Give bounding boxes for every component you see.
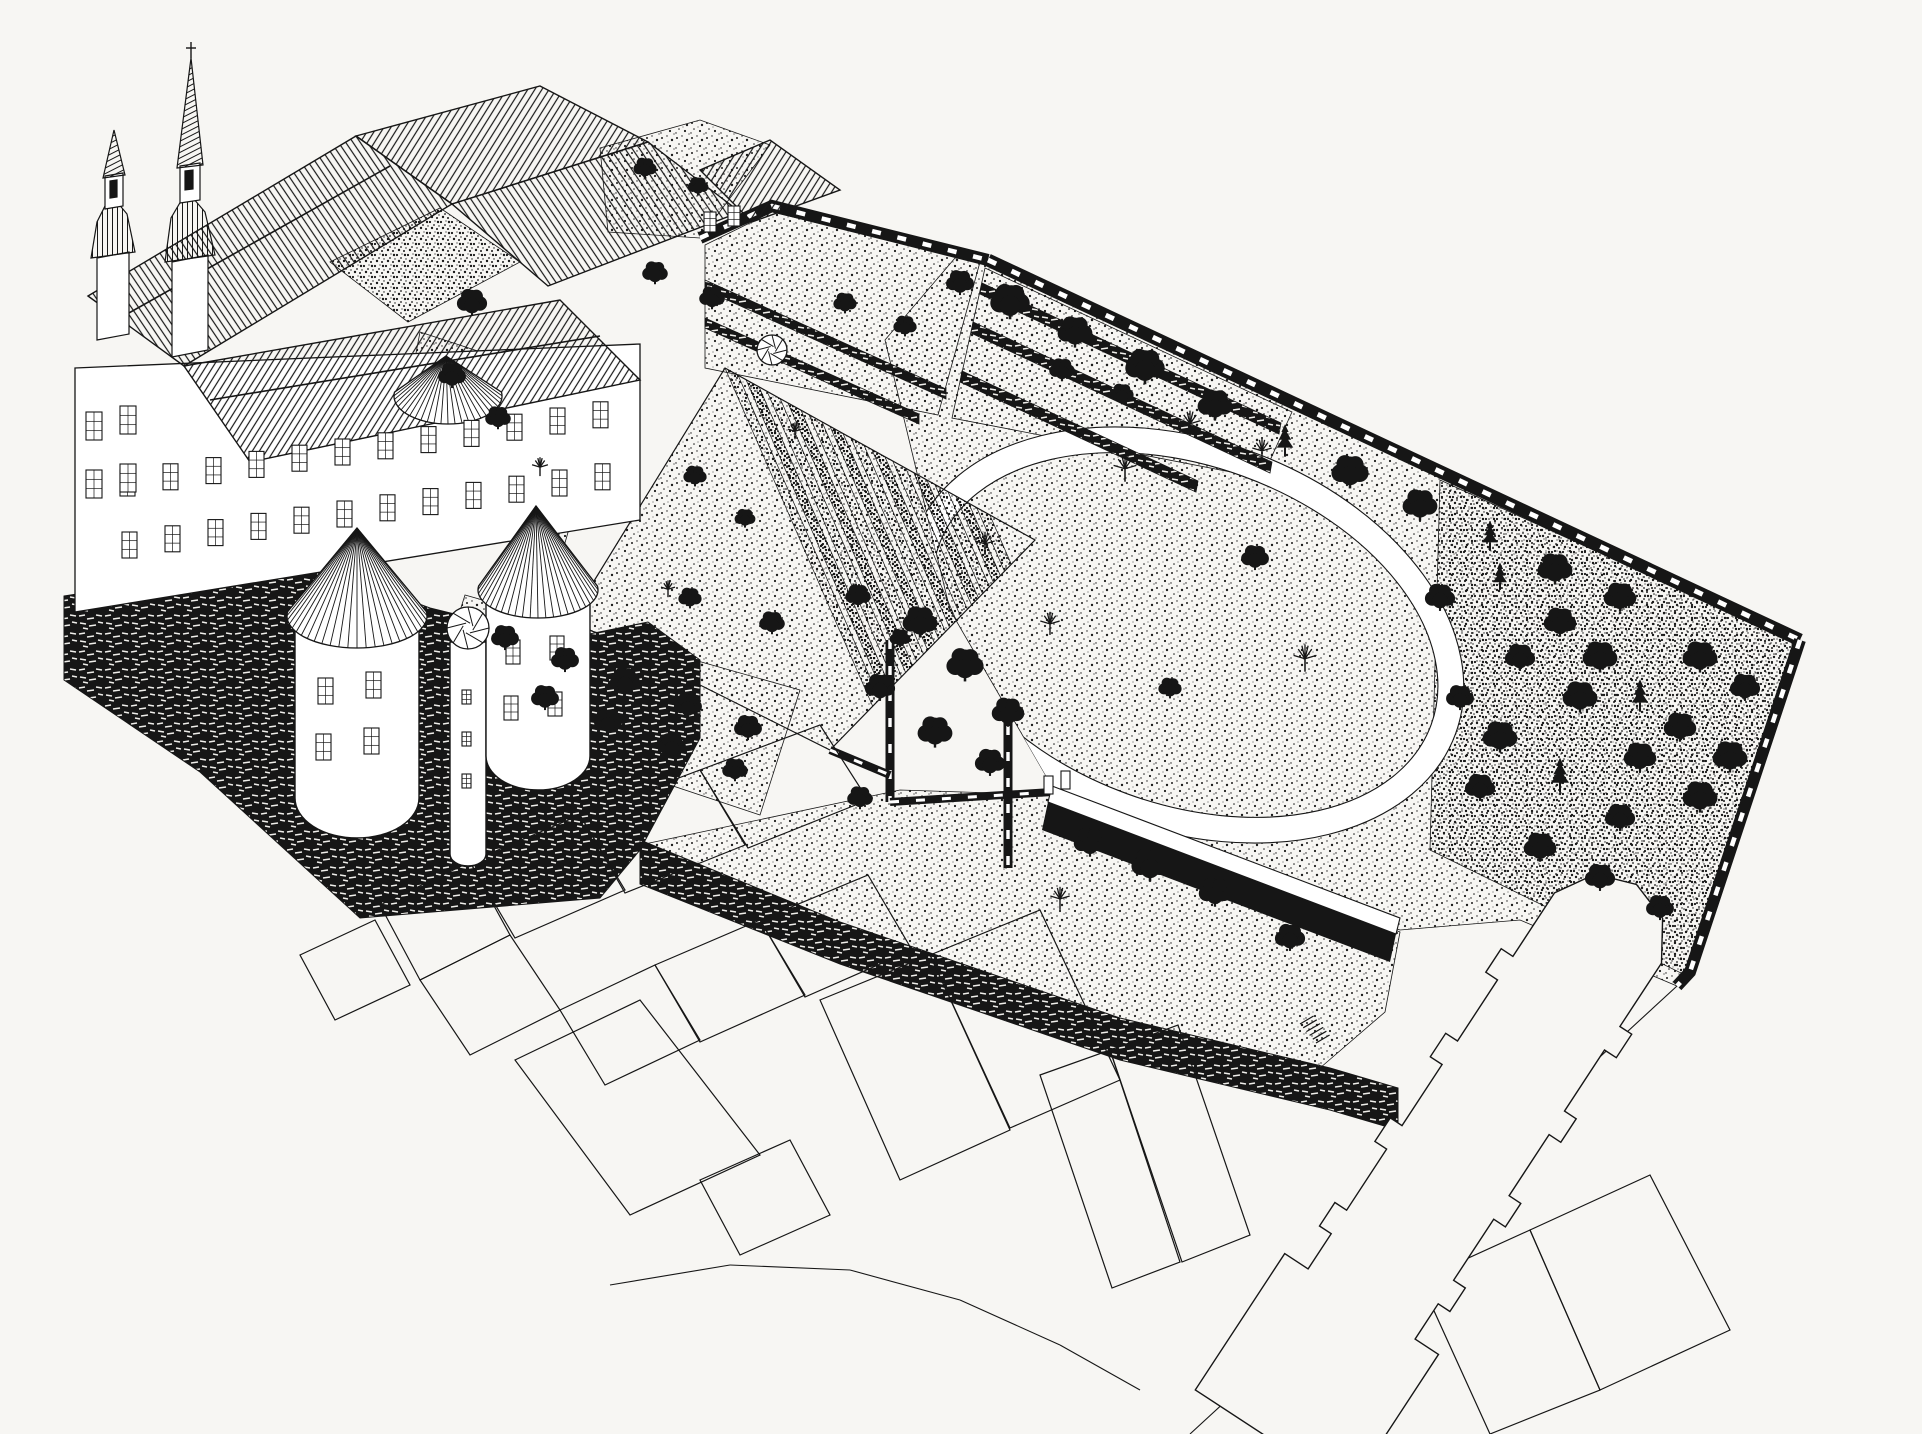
stair-turret [450, 642, 486, 866]
plot-outline [560, 965, 700, 1085]
church-spire-part [110, 180, 117, 198]
axonometric-castle-drawing [0, 0, 1922, 1434]
church-spire-part [185, 170, 193, 190]
church-spire-part [177, 58, 203, 168]
gate-post [1044, 776, 1053, 794]
plot-outline [300, 920, 410, 1020]
church-spire-part [165, 198, 215, 262]
plot-outline [700, 1140, 830, 1255]
plot-outline [1530, 1175, 1730, 1390]
drawing-page [0, 0, 1922, 1434]
church-spire-part [97, 252, 129, 340]
church-spire-part [172, 255, 208, 357]
gate-post [1061, 771, 1070, 789]
plot-outline [420, 935, 560, 1055]
tree-leafy [918, 716, 953, 747]
tree-leafy [642, 261, 668, 284]
tree-leafy [975, 749, 1005, 776]
church-spire-part [91, 202, 135, 258]
plot-outline [1040, 1050, 1180, 1288]
church-spire-part [103, 130, 125, 178]
